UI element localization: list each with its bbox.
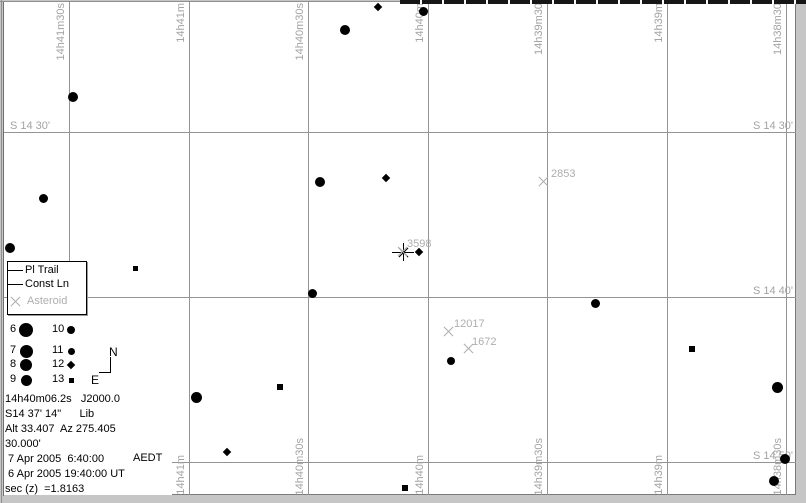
ra-gridline: [786, 2, 787, 495]
ra-gridline: [547, 2, 548, 495]
window-frame-left: [1, 0, 2, 503]
magnitude-dot: [19, 323, 33, 337]
ra-gridline: [308, 2, 309, 495]
star[interactable]: [308, 289, 317, 298]
star[interactable]: [772, 382, 783, 393]
ra-label-bottom: 14h38m30s: [772, 438, 785, 496]
asteroid-marker-2853[interactable]: [539, 177, 548, 186]
legend-label-pl-trail: Pl Trail: [25, 264, 59, 276]
planet-trail-line-symbol: [8, 270, 23, 271]
ra-label-top: 14h40m30s: [294, 3, 307, 61]
magnitude-dot: [21, 375, 32, 386]
dec-label-left: S 14 30': [10, 120, 50, 132]
magnitude-value: 10: [52, 323, 64, 335]
magnitude-value: 11: [52, 344, 63, 356]
ra-label-top: 14h39m30: [533, 3, 546, 55]
asteroid-label-12017: 12017: [454, 318, 485, 330]
ra-label-bottom: 14h39m30s: [533, 438, 546, 496]
magnitude-value: 6: [10, 323, 16, 335]
star[interactable]: [447, 357, 455, 365]
status-field-size: 30.000': [5, 437, 175, 452]
legend-label-asteroid: Asteroid: [27, 295, 67, 307]
star[interactable]: [769, 476, 779, 486]
star[interactable]: [277, 384, 283, 390]
ra-label-top: 14h41m: [175, 3, 188, 43]
star[interactable]: [191, 392, 202, 403]
star[interactable]: [315, 177, 325, 187]
asteroid-label-1672: 1672: [472, 336, 496, 348]
magnitude-dot: [68, 348, 75, 355]
constellation-line-symbol: [8, 284, 23, 285]
legend-label-const-ln: Const Ln: [25, 278, 69, 290]
ra-gridline: [189, 2, 190, 495]
status-ra-epoch: 14h40m06.2s J2000.0: [5, 392, 175, 407]
dec-gridline: [4, 132, 796, 133]
magnitude-dot: [69, 378, 74, 383]
asteroid-x-icon: [11, 297, 20, 306]
ra-label-top: 14h41m30s: [55, 3, 68, 61]
magnitude-value: 9: [10, 373, 16, 385]
magnitude-dot: [20, 359, 32, 371]
compass-east-label: E: [91, 373, 99, 387]
magnitude-value: 13: [52, 373, 64, 385]
star[interactable]: [68, 92, 78, 102]
magnitude-dot: [67, 326, 75, 334]
dec-label-right: S 14 30': [753, 120, 793, 132]
star[interactable]: [689, 346, 695, 352]
star[interactable]: [39, 194, 48, 203]
star[interactable]: [133, 266, 138, 271]
compass-north-line: [110, 357, 111, 373]
ra-label-top: 14h38m30: [772, 3, 785, 55]
star[interactable]: [591, 299, 600, 308]
dec-label-right: S 14 40': [753, 285, 793, 297]
ra-gridline: [667, 2, 668, 495]
magnitude-value: 7: [10, 344, 16, 356]
star[interactable]: [340, 25, 350, 35]
status-timezone: AEDT: [133, 452, 162, 464]
ra-label-bottom: 14h39m: [653, 455, 666, 495]
legend-box: Pl Trail Const Ln Asteroid: [7, 261, 87, 315]
ra-label-bottom: 14h40m: [414, 455, 427, 495]
ra-label-top: 14h39m: [653, 3, 666, 43]
sky-chart-window: 14h41m30s14h41m14h41m14h40m30s14h40m30s1…: [0, 0, 806, 503]
compass-east-line: [99, 372, 111, 373]
star[interactable]: [5, 243, 15, 253]
window-fragment-strip: [400, 0, 806, 4]
ra-label-bottom: 14h41m: [175, 455, 188, 495]
ra-label-bottom: 14h40m30s: [294, 438, 307, 496]
dec-gridline: [4, 297, 796, 298]
star[interactable]: [780, 454, 790, 464]
magnitude-value: 8: [10, 358, 16, 370]
status-ut-time: 6 Apr 2005 19:40:00 UT: [5, 467, 175, 482]
magnitude-dot: [20, 345, 33, 358]
star[interactable]: [402, 485, 408, 491]
status-dec-constellation: S14 37' 14" Lib: [5, 407, 175, 422]
asteroid-label-2853: 2853: [551, 168, 575, 180]
status-alt-az: Alt 33.407 Az 275.405: [5, 422, 175, 437]
asteroid-marker-3598[interactable]: [398, 247, 407, 256]
star[interactable]: [419, 7, 428, 16]
status-airmass: sec (z) =1.8163: [5, 482, 175, 497]
magnitude-value: 12: [52, 358, 64, 370]
asteroid-marker-12017[interactable]: [444, 327, 453, 336]
